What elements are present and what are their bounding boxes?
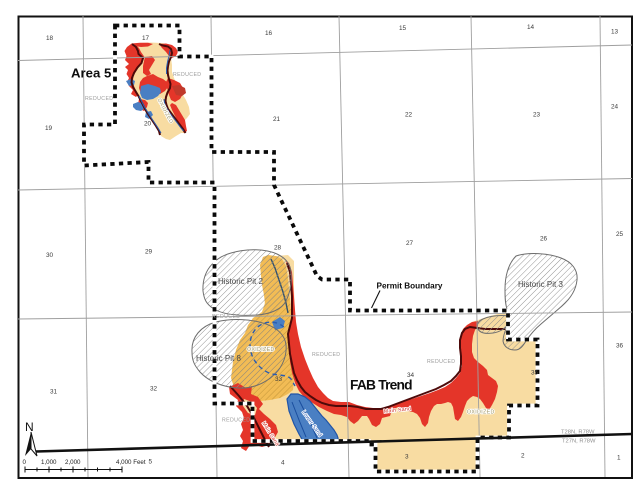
svg-text:OXIDIZED: OXIDIZED	[247, 347, 275, 353]
svg-text:5: 5	[149, 459, 153, 466]
svg-text:T27N, R78W: T27N, R78W	[562, 439, 596, 445]
svg-text:2: 2	[521, 453, 525, 460]
svg-text:Historic Pit 3: Historic Pit 3	[518, 280, 563, 289]
svg-text:25: 25	[616, 231, 624, 238]
svg-text:REDUCED: REDUCED	[312, 352, 340, 358]
svg-text:31: 31	[50, 389, 58, 396]
svg-text:REDUCED: REDUCED	[85, 96, 113, 102]
svg-text:13: 13	[611, 29, 619, 36]
svg-text:21: 21	[273, 116, 281, 123]
svg-text:20: 20	[144, 121, 152, 128]
svg-text:16: 16	[265, 30, 273, 37]
svg-text:29: 29	[145, 249, 153, 256]
svg-text:REDUCED: REDUCED	[427, 359, 455, 365]
svg-text:35: 35	[531, 370, 539, 377]
svg-text:FAB Trend: FAB Trend	[350, 378, 412, 393]
svg-text:1,000: 1,000	[41, 459, 57, 466]
svg-text:14: 14	[527, 24, 535, 31]
svg-text:33: 33	[275, 376, 283, 383]
svg-text:23: 23	[533, 112, 541, 119]
svg-text:28: 28	[274, 245, 282, 252]
svg-text:26: 26	[540, 236, 548, 243]
svg-text:REDUCED: REDUCED	[173, 72, 201, 78]
svg-text:2,000: 2,000	[65, 459, 81, 466]
svg-text:1: 1	[617, 455, 621, 462]
svg-text:17: 17	[142, 35, 150, 42]
svg-text:24: 24	[611, 104, 619, 111]
svg-text:22: 22	[405, 112, 413, 119]
svg-text:19: 19	[45, 125, 53, 132]
svg-text:36: 36	[616, 343, 624, 350]
svg-text:REDUCED: REDUCED	[212, 314, 240, 320]
svg-text:27: 27	[406, 240, 414, 247]
svg-text:Permit Boundary: Permit Boundary	[377, 282, 443, 291]
svg-text:15: 15	[399, 25, 407, 32]
svg-text:N: N	[25, 420, 34, 434]
svg-text:4,000 Feet: 4,000 Feet	[116, 459, 146, 466]
svg-text:0: 0	[23, 459, 27, 466]
svg-text:Historic Pit 2: Historic Pit 2	[218, 277, 263, 286]
svg-text:REDUCED: REDUCED	[222, 418, 250, 424]
svg-text:4: 4	[281, 460, 285, 467]
svg-text:3: 3	[405, 454, 409, 461]
svg-text:Area 5: Area 5	[71, 66, 111, 81]
svg-text:Historic Pit 8: Historic Pit 8	[196, 354, 241, 363]
svg-text:T28N, R78W: T28N, R78W	[561, 430, 595, 436]
svg-text:18: 18	[46, 35, 54, 42]
svg-text:30: 30	[46, 252, 54, 259]
svg-text:OXIDIZED: OXIDIZED	[467, 410, 495, 416]
svg-text:32: 32	[150, 386, 158, 393]
